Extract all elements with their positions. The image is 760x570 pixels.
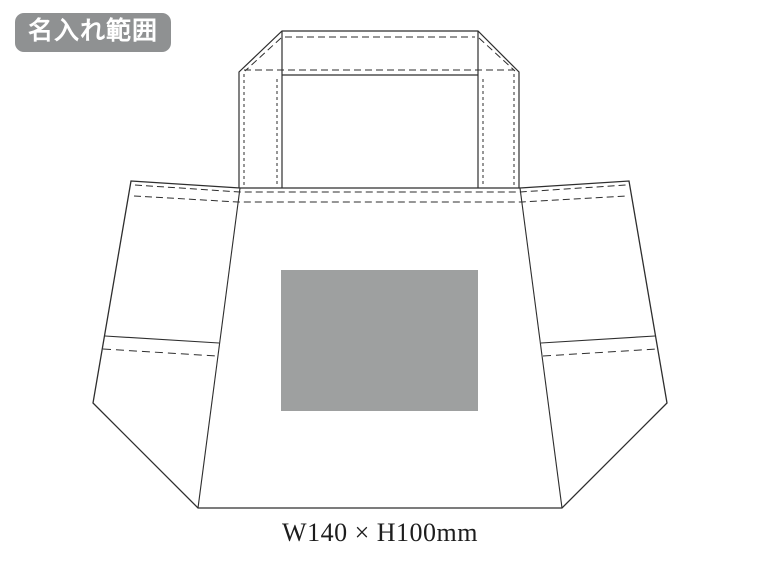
- right-gusset-band: [541, 336, 655, 343]
- handle-stitch-dashed: [244, 37, 515, 71]
- left-gusset-band-stitch: [103, 349, 217, 356]
- left-gusset-band: [105, 336, 219, 343]
- handle-strap-stitch-dashed: [244, 74, 514, 186]
- dimension-label: W140 × H100mm: [0, 518, 760, 548]
- right-panel-seam: [520, 188, 562, 508]
- left-panel-seam: [198, 188, 240, 508]
- imprint-area-diagram: 名入れ範囲 W140 × H100mm: [0, 0, 760, 570]
- imprint-range-badge: 名入れ範囲: [15, 13, 171, 52]
- tote-bag-drawing: [0, 0, 760, 570]
- imprint-area-rect: [281, 270, 478, 411]
- right-gusset-band-stitch: [543, 349, 657, 356]
- handle-outline: [239, 31, 519, 188]
